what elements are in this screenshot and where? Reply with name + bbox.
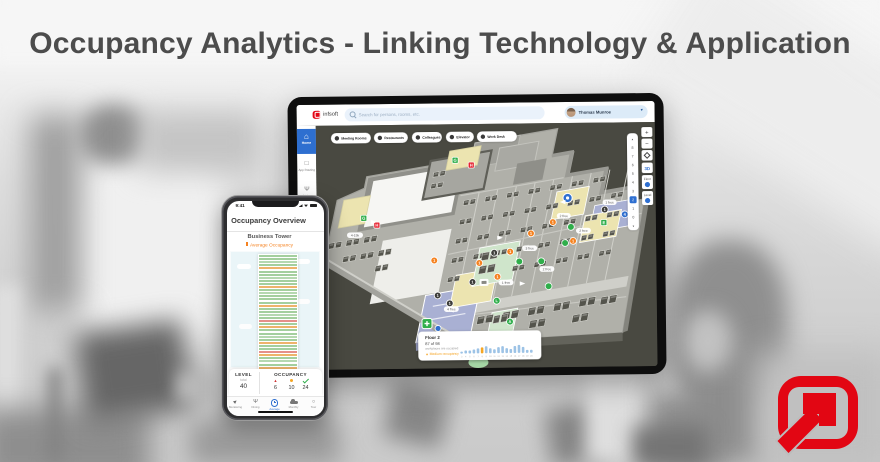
svg-text:G: G [362, 216, 365, 221]
svg-text:Meeting Rooms: Meeting Rooms [341, 136, 366, 140]
svg-text:Floor 2: Floor 2 [425, 335, 440, 340]
svg-text:3 free: 3 free [525, 246, 534, 250]
svg-text:1 free: 1 free [605, 201, 614, 205]
svg-text:▲ Medium occupancy: ▲ Medium occupancy [425, 352, 459, 356]
svg-text:▼: ▼ [632, 225, 635, 228]
svg-text:2 free: 2 free [543, 267, 552, 271]
svg-text:1: 1 [632, 207, 634, 211]
svg-text:▲: ▲ [631, 138, 634, 141]
svg-text:6: 6 [632, 163, 634, 167]
svg-text:G: G [453, 158, 456, 163]
svg-text:2 free: 2 free [560, 214, 569, 218]
svg-text:7: 7 [632, 155, 634, 159]
svg-text:Colleagues: Colleagues [422, 136, 440, 140]
svg-text:4-15k: 4-15k [351, 233, 360, 237]
svg-text:Work Desk: Work Desk [487, 135, 505, 139]
svg-text:1 free: 1 free [502, 281, 511, 285]
svg-text:87 of 98: 87 of 98 [425, 341, 440, 346]
svg-text:workplaces are occupied: workplaces are occupied [425, 346, 458, 350]
svg-text:2 free: 2 free [579, 229, 588, 233]
svg-text:−: − [645, 141, 649, 147]
svg-text:A: A [509, 319, 512, 324]
svg-text:H: H [470, 163, 473, 168]
svg-text:4 free: 4 free [447, 307, 456, 311]
svg-text:Floor: Floor [644, 177, 652, 181]
svg-text:5: 5 [632, 172, 634, 176]
svg-text:H: H [375, 223, 378, 228]
svg-text:+: + [645, 130, 649, 136]
svg-text:3: 3 [632, 189, 634, 193]
svg-text:4: 4 [632, 181, 634, 185]
svg-text:2: 2 [632, 198, 634, 202]
svg-text:Restaurants: Restaurants [384, 136, 404, 140]
svg-text:Elevator: Elevator [456, 135, 470, 139]
svg-text:3D: 3D [644, 166, 650, 171]
svg-text:8: 8 [631, 146, 633, 150]
svg-text:0: 0 [632, 215, 634, 219]
svg-text:E: E [602, 220, 605, 225]
svg-text:Level: Level [644, 193, 652, 197]
